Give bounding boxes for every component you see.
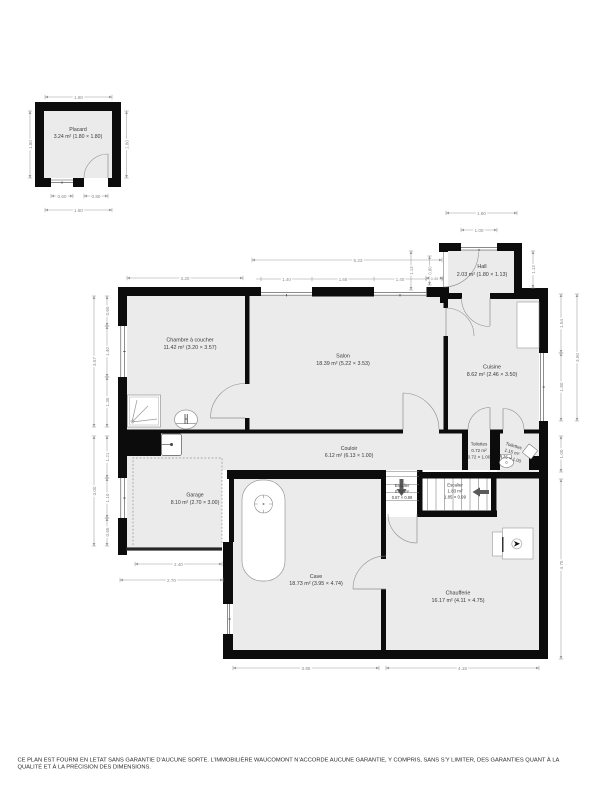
svg-text:18.73 m² (3.95 × 4.74): 18.73 m² (3.95 × 4.74) [289, 581, 343, 587]
svg-text:1.85 × 0.99: 1.85 × 0.99 [444, 495, 467, 500]
svg-text:0.80: 0.80 [427, 266, 432, 275]
svg-text:1.00: 1.00 [475, 228, 484, 233]
svg-text:1.40: 1.40 [396, 277, 405, 282]
svg-text:0.87 × 0.99: 0.87 × 0.99 [392, 495, 413, 500]
svg-text:18.39 m² (5.22 × 3.53): 18.39 m² (5.22 × 3.53) [316, 361, 370, 367]
svg-text:Placard: Placard [69, 127, 87, 133]
svg-text:0.86 m²: 0.86 m² [395, 489, 410, 494]
svg-text:1.80: 1.80 [74, 95, 83, 100]
svg-text:3.57: 3.57 [92, 357, 97, 366]
svg-text:0.72 m²: 0.72 m² [471, 448, 487, 453]
svg-text:1.40: 1.40 [282, 277, 291, 282]
svg-text:2.40: 2.40 [174, 562, 183, 567]
svg-text:CE PLAN EST FOURNI EN LETAT SA: CE PLAN EST FOURNI EN LETAT SANS GARANTI… [18, 757, 560, 764]
svg-text:1.00: 1.00 [559, 449, 564, 458]
svg-text:6.12 m² (6.13 × 1.00): 6.12 m² (6.13 × 1.00) [325, 453, 374, 459]
svg-text:1.40: 1.40 [105, 347, 110, 356]
svg-text:1.54: 1.54 [559, 319, 564, 328]
svg-text:5.23: 5.23 [354, 258, 363, 263]
svg-text:Chaufferie: Chaufferie [446, 591, 471, 597]
svg-text:0.60: 0.60 [105, 306, 110, 315]
svg-text:3.50: 3.50 [575, 353, 580, 362]
svg-text:1.80: 1.80 [477, 211, 486, 216]
svg-text:4.75: 4.75 [559, 560, 564, 569]
svg-text:3.20: 3.20 [181, 276, 190, 281]
svg-text:1.13: 1.13 [531, 265, 536, 274]
svg-text:3.24 m² (1.80 × 1.80): 3.24 m² (1.80 × 1.80) [54, 134, 103, 140]
svg-text:1.83 m²: 1.83 m² [448, 489, 463, 494]
svg-text:1.21: 1.21 [105, 452, 110, 461]
svg-text:1.10: 1.10 [105, 493, 110, 502]
svg-text:Toilettes: Toilettes [471, 442, 488, 447]
svg-text:2.03 m² (1.80 × 1.13): 2.03 m² (1.80 × 1.13) [457, 272, 508, 278]
svg-text:Cave: Cave [310, 574, 323, 580]
svg-text:Cuisine: Cuisine [483, 365, 501, 371]
svg-text:1.35: 1.35 [105, 397, 110, 406]
svg-text:8.62 m² (2.46 × 3.50): 8.62 m² (2.46 × 3.50) [467, 372, 518, 378]
svg-text:2.70: 2.70 [167, 578, 176, 583]
svg-text:QUALITÉ ET À LA PRÉCISION DES: QUALITÉ ET À LA PRÉCISION DES DIMENSIONS… [18, 764, 152, 771]
svg-text:Couloir: Couloir [341, 446, 358, 452]
svg-text:Salon: Salon [336, 354, 350, 360]
svg-text:0.72 × 1.00: 0.72 × 1.00 [468, 455, 491, 460]
svg-text:1.13: 1.13 [409, 266, 414, 275]
svg-text:16.17 m² (4.11 × 4.75): 16.17 m² (4.11 × 4.75) [431, 598, 484, 604]
svg-text:1.80: 1.80 [559, 382, 564, 391]
svg-text:3.00: 3.00 [92, 486, 97, 495]
svg-text:Chambre à coucher: Chambre à coucher [166, 338, 214, 344]
svg-text:8.10 m² (2.70 × 3.00): 8.10 m² (2.70 × 3.00) [171, 500, 220, 506]
svg-text:0.60: 0.60 [58, 194, 67, 199]
svg-text:1.80: 1.80 [124, 140, 129, 149]
svg-text:1.80: 1.80 [28, 140, 33, 149]
svg-text:3.95: 3.95 [302, 666, 311, 671]
svg-text:0.65: 0.65 [105, 527, 110, 536]
svg-text:11.42 m² (3.20 × 3.57): 11.42 m² (3.20 × 3.57) [163, 345, 216, 351]
svg-text:Garage: Garage [186, 493, 203, 499]
svg-text:Hall: Hall [477, 264, 486, 270]
svg-text:0.80: 0.80 [92, 194, 101, 199]
svg-text:Escalier: Escalier [447, 483, 463, 488]
svg-text:0.45: 0.45 [431, 276, 440, 281]
svg-text:4.18: 4.18 [458, 666, 467, 671]
svg-text:1.80: 1.80 [74, 208, 83, 213]
svg-text:1.68: 1.68 [339, 277, 348, 282]
svg-text:Escalier: Escalier [395, 483, 410, 488]
